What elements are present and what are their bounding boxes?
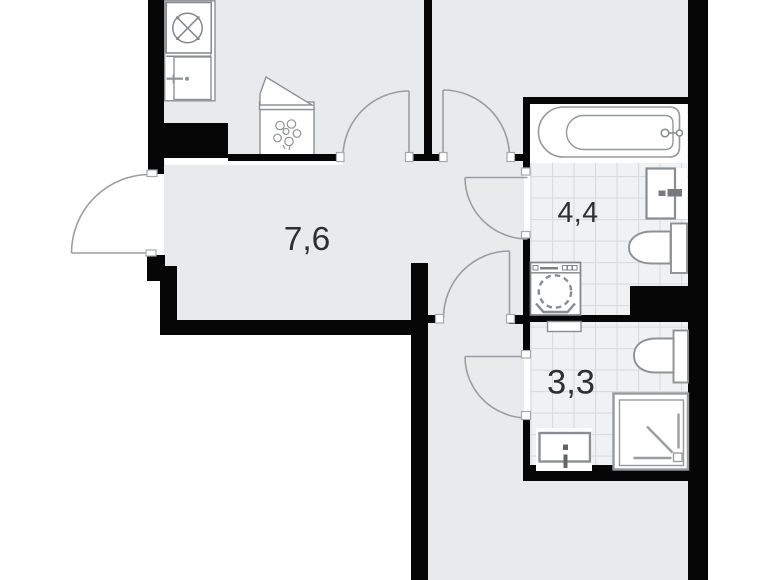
svg-text:3,3: 3,3	[547, 363, 595, 401]
svg-text:4,4: 4,4	[557, 197, 598, 229]
svg-text:7,6: 7,6	[284, 221, 331, 258]
